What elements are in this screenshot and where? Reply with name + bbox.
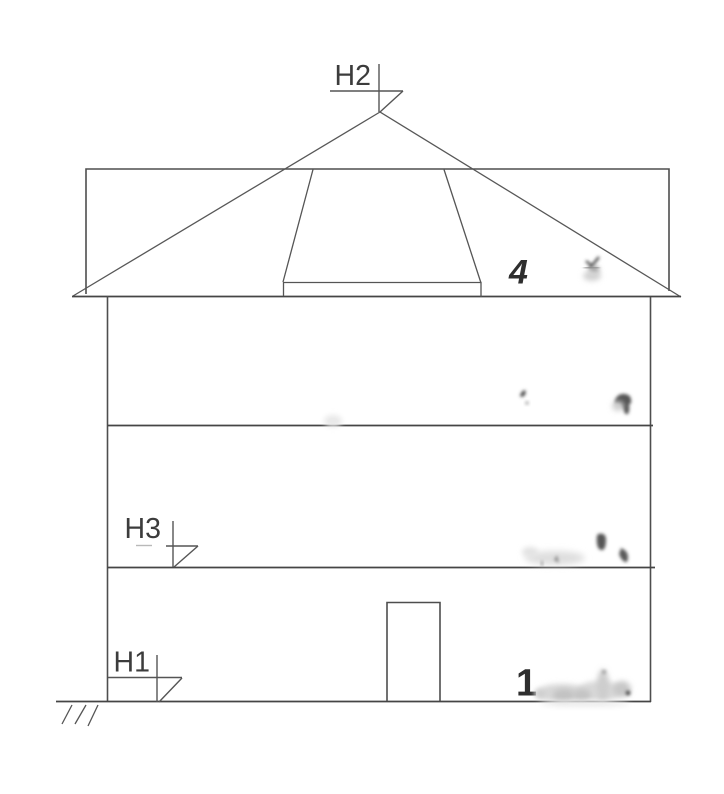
svg-text:4: 4 bbox=[508, 254, 528, 292]
svg-text:H1: H1 bbox=[114, 647, 150, 679]
svg-text:1: 1 bbox=[516, 663, 537, 705]
svg-text:H2: H2 bbox=[335, 60, 371, 92]
svg-text:H3: H3 bbox=[125, 513, 161, 545]
